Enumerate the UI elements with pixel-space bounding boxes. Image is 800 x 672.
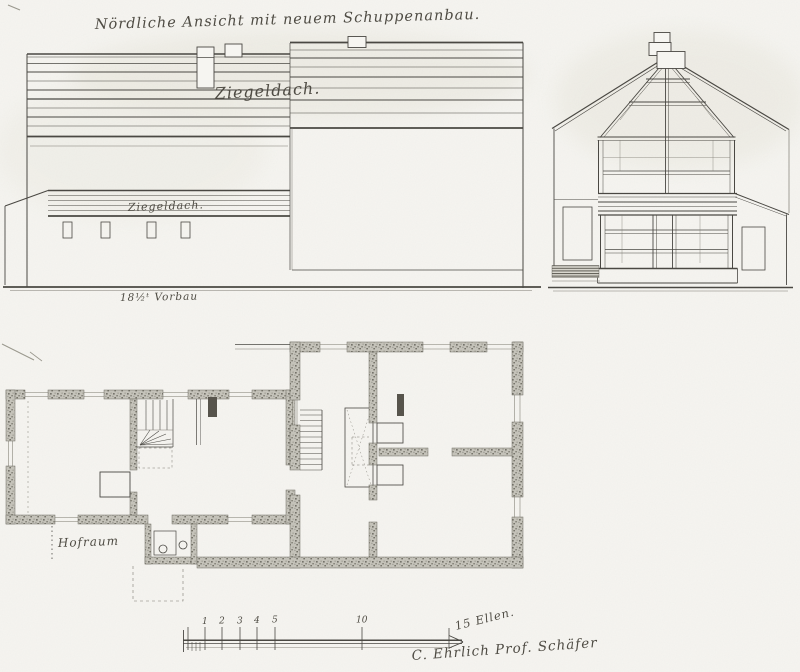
interior-wall: [130, 399, 137, 470]
masonry-pier: [208, 397, 217, 417]
scale-tick-label-10: 10: [356, 616, 368, 626]
elevation-note: 18½ᵗ Vorbau: [120, 291, 198, 304]
scanned-drawing-page: Nördliche Ansicht mit neuem Schuppenanba…: [0, 0, 800, 672]
architectural-drawing-canvas: Nördliche Ansicht mit neuem Schuppenanba…: [0, 0, 800, 672]
interior-wall: [130, 492, 137, 515]
scale-tick-label-3: 3: [237, 617, 243, 627]
scale-tick-label-4: 4: [253, 616, 260, 626]
masonry-pier: [397, 394, 404, 416]
scale-tick-label-2: 2: [218, 617, 225, 627]
roof-label-shed: Ziegeldach.: [127, 198, 205, 214]
hatched-plinth: [552, 266, 599, 278]
paper-noise: [0, 0, 800, 672]
scale-tick-label-1: 1: [202, 617, 208, 627]
courtyard-label: Hofraum: [57, 534, 120, 550]
scale-tick-label-5: 5: [272, 616, 278, 626]
